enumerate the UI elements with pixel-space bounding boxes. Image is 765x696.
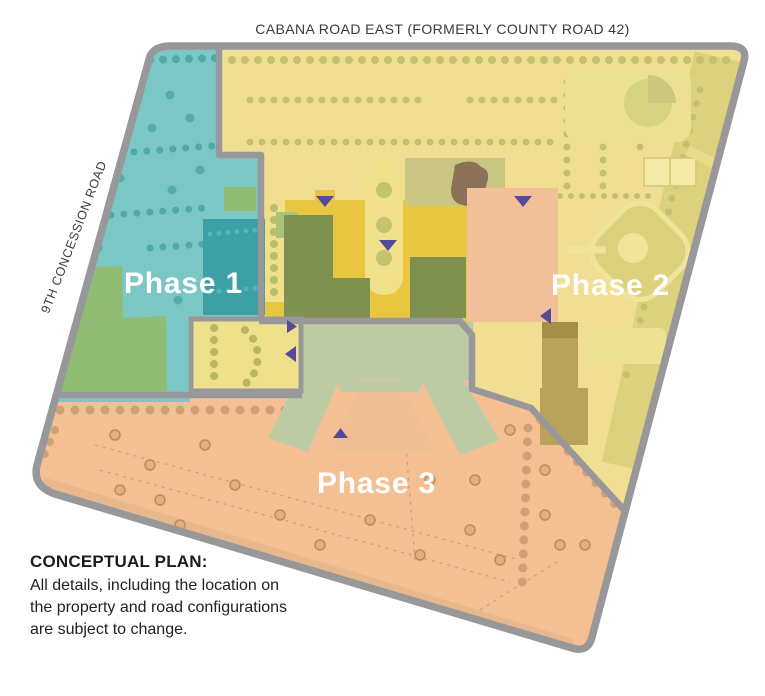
note-line: the property and road configurations [30,597,287,619]
phase-2-label: Phase 2 [551,269,670,303]
note-title: CONCEPTUAL PLAN: [30,552,287,572]
green-building-small [224,187,256,211]
conceptual-plan-note: CONCEPTUAL PLAN: All details, including … [30,552,287,641]
phase-3-label: Phase 3 [317,467,436,501]
road-label-cabana: CABANA ROAD EAST (FORMERLY COUNTY ROAD 4… [120,21,765,37]
courtyard-box [191,319,301,391]
peach-building [467,188,558,322]
note-line: All details, including the location on [30,575,287,597]
olive-building-east [410,257,466,318]
note-line: are subject to change. [30,619,287,641]
phase-1-label: Phase 1 [124,267,243,301]
site-plan-page: CABANA ROAD EAST (FORMERLY COUNTY ROAD 4… [0,0,765,696]
